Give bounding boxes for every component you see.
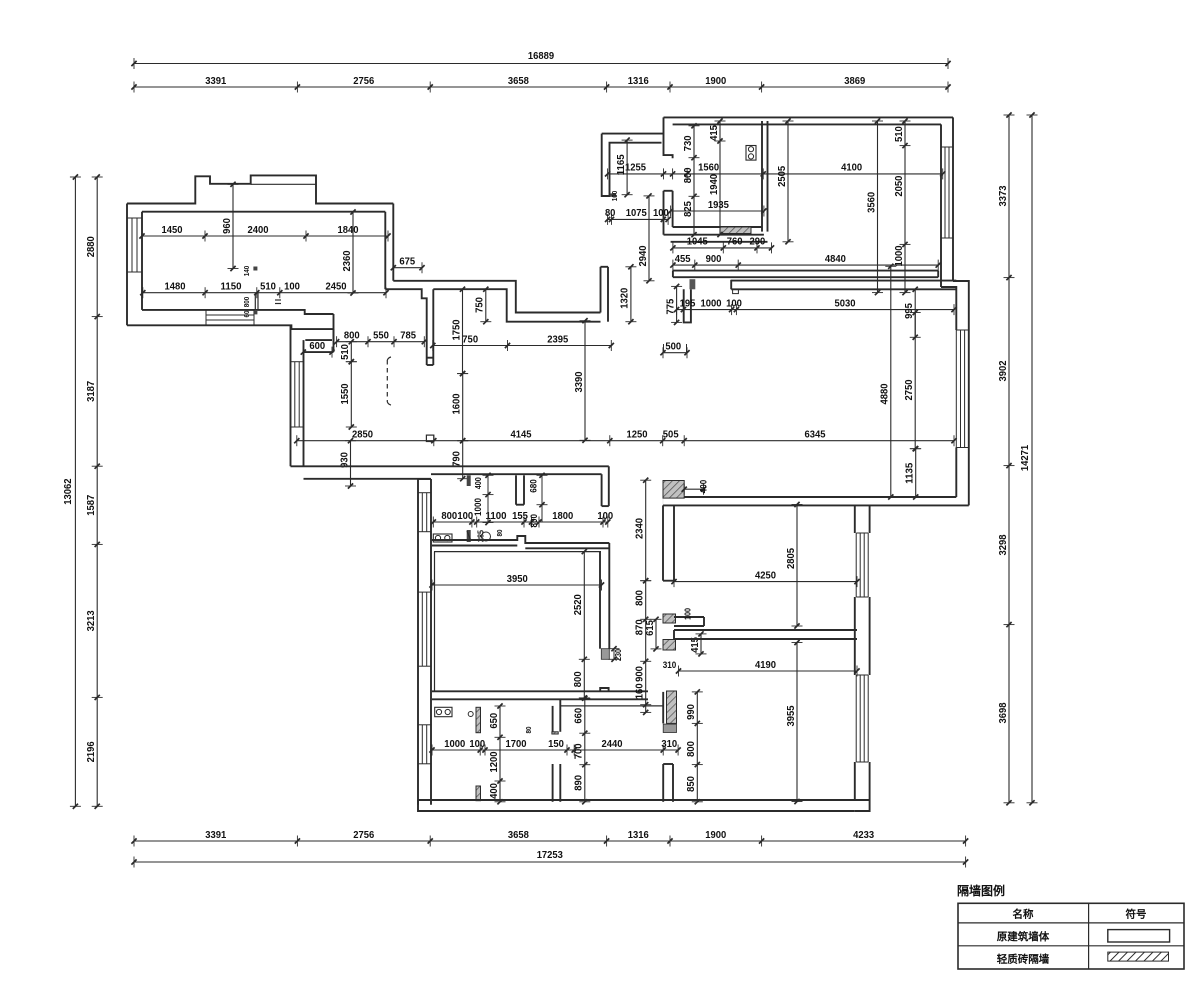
svg-text:2520: 2520 — [572, 594, 584, 615]
svg-text:400: 400 — [474, 477, 483, 489]
svg-text:140: 140 — [244, 266, 251, 277]
svg-text:890: 890 — [573, 775, 585, 791]
svg-text:1000: 1000 — [893, 245, 905, 266]
svg-text:1165: 1165 — [615, 154, 627, 175]
svg-text:800: 800 — [682, 167, 694, 183]
svg-text:800: 800 — [529, 514, 539, 528]
svg-text:3869: 3869 — [844, 75, 865, 87]
svg-text:415: 415 — [708, 125, 720, 141]
svg-text:800: 800 — [244, 297, 251, 308]
svg-text:1250: 1250 — [627, 429, 648, 441]
svg-text:700: 700 — [573, 743, 585, 759]
svg-text:1200: 1200 — [488, 751, 500, 772]
svg-text:1900: 1900 — [705, 75, 726, 87]
svg-text:990: 990 — [685, 704, 697, 720]
svg-text:1587: 1587 — [85, 495, 97, 516]
svg-text:1320: 1320 — [619, 288, 631, 309]
svg-text:3373: 3373 — [997, 185, 1009, 206]
svg-text:符号: 符号 — [1126, 908, 1147, 921]
svg-text:3298: 3298 — [997, 534, 1009, 555]
svg-text:1550: 1550 — [339, 383, 351, 404]
svg-text:510: 510 — [260, 281, 276, 293]
svg-text:3658: 3658 — [508, 829, 529, 841]
svg-text:960: 960 — [221, 218, 233, 234]
svg-text:1940: 1940 — [708, 174, 720, 195]
svg-text:1600: 1600 — [451, 393, 463, 414]
svg-text:800: 800 — [634, 590, 646, 606]
svg-text:750: 750 — [462, 333, 478, 345]
svg-text:轻质砖隔墙: 轻质砖隔墙 — [997, 953, 1050, 966]
svg-text:660: 660 — [573, 708, 585, 724]
svg-text:60: 60 — [244, 310, 251, 317]
svg-text:4233: 4233 — [853, 829, 874, 841]
svg-text:3950: 3950 — [507, 573, 528, 585]
svg-text:4880: 4880 — [879, 383, 891, 404]
svg-text:785: 785 — [400, 330, 416, 342]
svg-text:800: 800 — [441, 510, 457, 522]
svg-text:1100: 1100 — [486, 510, 507, 522]
svg-text:1480: 1480 — [165, 281, 186, 293]
svg-text:13062: 13062 — [62, 478, 74, 504]
svg-text:1135: 1135 — [904, 463, 916, 484]
svg-text:1900: 1900 — [705, 829, 726, 841]
svg-text:155: 155 — [512, 510, 528, 522]
svg-text:4190: 4190 — [755, 659, 776, 671]
svg-text:775: 775 — [664, 299, 676, 315]
svg-text:675: 675 — [399, 256, 415, 268]
svg-text:800: 800 — [572, 671, 584, 687]
svg-text:3391: 3391 — [205, 75, 226, 87]
svg-text:3955: 3955 — [785, 705, 797, 726]
svg-text:900: 900 — [706, 253, 722, 265]
svg-text:400: 400 — [699, 480, 709, 494]
svg-text:615: 615 — [644, 620, 656, 636]
svg-text:6345: 6345 — [805, 429, 826, 441]
svg-text:1000: 1000 — [701, 297, 722, 309]
svg-text:1316: 1316 — [628, 829, 649, 841]
svg-text:1255: 1255 — [625, 162, 646, 174]
svg-text:4145: 4145 — [511, 429, 532, 441]
svg-text:455: 455 — [675, 253, 691, 265]
svg-text:4840: 4840 — [825, 253, 846, 265]
svg-text:2750: 2750 — [903, 379, 915, 400]
svg-text:2440: 2440 — [602, 738, 623, 750]
svg-text:4100: 4100 — [841, 162, 862, 174]
svg-text:600: 600 — [309, 340, 325, 352]
svg-text:2395: 2395 — [547, 333, 568, 345]
svg-text:650: 650 — [488, 713, 500, 729]
svg-text:995: 995 — [903, 303, 915, 319]
svg-text:100: 100 — [653, 207, 669, 219]
svg-text:100: 100 — [612, 191, 619, 202]
svg-text:5030: 5030 — [835, 297, 856, 309]
svg-text:1750: 1750 — [450, 319, 462, 340]
svg-text:2196: 2196 — [85, 741, 97, 762]
svg-text:100: 100 — [683, 608, 692, 620]
svg-text:80: 80 — [526, 726, 533, 733]
svg-text:名称: 名称 — [1013, 908, 1035, 921]
svg-text:510: 510 — [339, 344, 351, 360]
svg-text:17253: 17253 — [537, 849, 563, 861]
svg-text:790: 790 — [451, 451, 463, 467]
svg-text:3658: 3658 — [508, 75, 529, 87]
svg-text:750: 750 — [474, 297, 486, 313]
svg-text:3698: 3698 — [997, 702, 1009, 723]
svg-text:1075: 1075 — [626, 207, 647, 219]
svg-text:隔墙图例: 隔墙图例 — [957, 883, 1005, 898]
svg-text:1000: 1000 — [473, 498, 483, 516]
svg-text:80: 80 — [497, 529, 504, 536]
svg-text:2505: 2505 — [776, 166, 788, 187]
svg-text:510: 510 — [893, 126, 905, 142]
svg-text:1000: 1000 — [444, 738, 465, 750]
svg-text:505: 505 — [663, 429, 679, 441]
svg-text:680: 680 — [529, 479, 539, 493]
svg-text:825: 825 — [682, 201, 694, 217]
svg-text:3560: 3560 — [865, 192, 877, 213]
svg-text:100: 100 — [284, 281, 300, 293]
svg-text:80: 80 — [605, 207, 616, 219]
svg-text:160: 160 — [634, 683, 646, 699]
svg-text:2805: 2805 — [785, 548, 797, 569]
svg-text:1316: 1316 — [628, 75, 649, 87]
svg-text:2940: 2940 — [637, 245, 649, 266]
svg-text:3391: 3391 — [205, 829, 226, 841]
svg-text:760: 760 — [727, 236, 743, 248]
svg-text:400: 400 — [488, 783, 500, 799]
svg-text:100: 100 — [457, 510, 473, 522]
svg-text:2340: 2340 — [634, 518, 646, 539]
svg-text:100: 100 — [597, 510, 613, 522]
svg-text:100: 100 — [726, 297, 742, 309]
svg-text:2756: 2756 — [353, 75, 374, 87]
svg-text:1700: 1700 — [506, 738, 527, 750]
svg-text:1150: 1150 — [221, 281, 242, 293]
svg-text:2400: 2400 — [248, 224, 269, 236]
svg-text:2450: 2450 — [326, 281, 347, 293]
svg-text:900: 900 — [634, 666, 646, 682]
svg-text:3187: 3187 — [85, 381, 97, 402]
svg-text:730: 730 — [682, 135, 694, 151]
svg-text:850: 850 — [685, 776, 697, 792]
svg-text:1560: 1560 — [698, 162, 719, 174]
svg-text:1840: 1840 — [338, 224, 359, 236]
svg-text:1450: 1450 — [162, 224, 183, 236]
svg-text:4250: 4250 — [755, 569, 776, 581]
svg-text:2880: 2880 — [85, 236, 97, 257]
svg-text:290: 290 — [750, 236, 766, 248]
svg-text:1800: 1800 — [552, 510, 573, 522]
svg-text:2756: 2756 — [353, 829, 374, 841]
svg-text:100: 100 — [469, 738, 485, 750]
svg-text:3390: 3390 — [573, 371, 585, 392]
svg-text:800: 800 — [685, 741, 697, 757]
svg-text:16889: 16889 — [528, 50, 554, 62]
svg-text:14271: 14271 — [1019, 445, 1031, 471]
svg-text:195: 195 — [680, 297, 696, 309]
svg-text:310: 310 — [661, 738, 677, 750]
svg-text:2850: 2850 — [352, 429, 373, 441]
svg-text:150: 150 — [548, 738, 564, 750]
svg-text:1935: 1935 — [708, 199, 729, 211]
svg-text:原建筑墙体: 原建筑墙体 — [997, 930, 1050, 943]
svg-text:500: 500 — [665, 341, 681, 353]
svg-text:550: 550 — [373, 330, 389, 342]
svg-text:310: 310 — [663, 660, 677, 670]
svg-text:3902: 3902 — [997, 360, 1009, 381]
svg-text:2050: 2050 — [893, 175, 905, 196]
svg-text:800: 800 — [344, 330, 360, 342]
svg-text:3213: 3213 — [85, 610, 97, 631]
svg-text:1045: 1045 — [687, 236, 708, 248]
svg-text:2360: 2360 — [341, 250, 353, 271]
